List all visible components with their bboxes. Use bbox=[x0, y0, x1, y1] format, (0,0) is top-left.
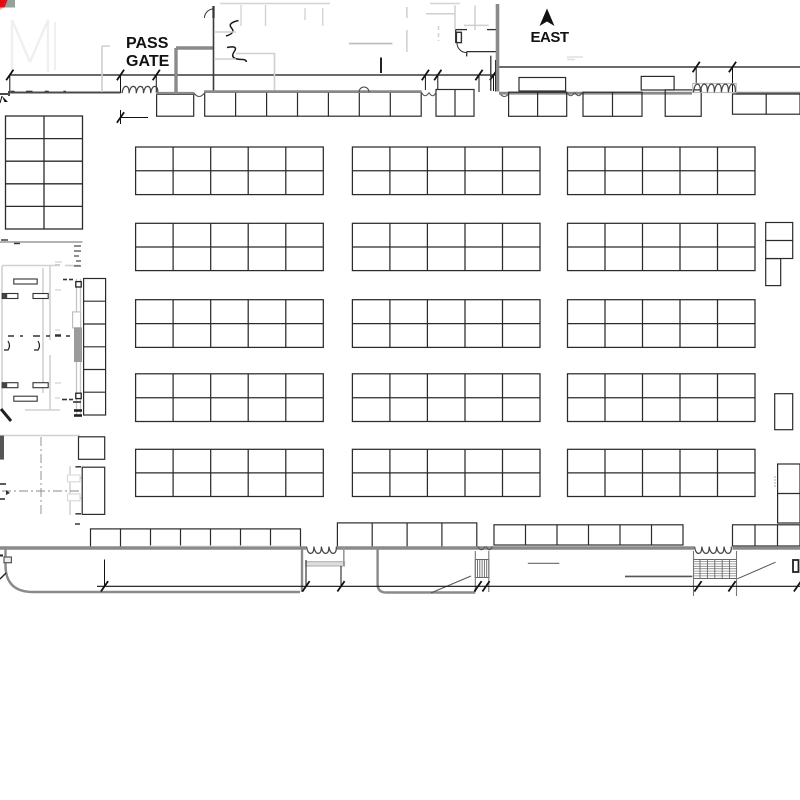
svg-text:PASS: PASS bbox=[126, 35, 169, 52]
svg-text:GATE: GATE bbox=[126, 53, 170, 70]
svg-text:EAST: EAST bbox=[531, 29, 569, 46]
